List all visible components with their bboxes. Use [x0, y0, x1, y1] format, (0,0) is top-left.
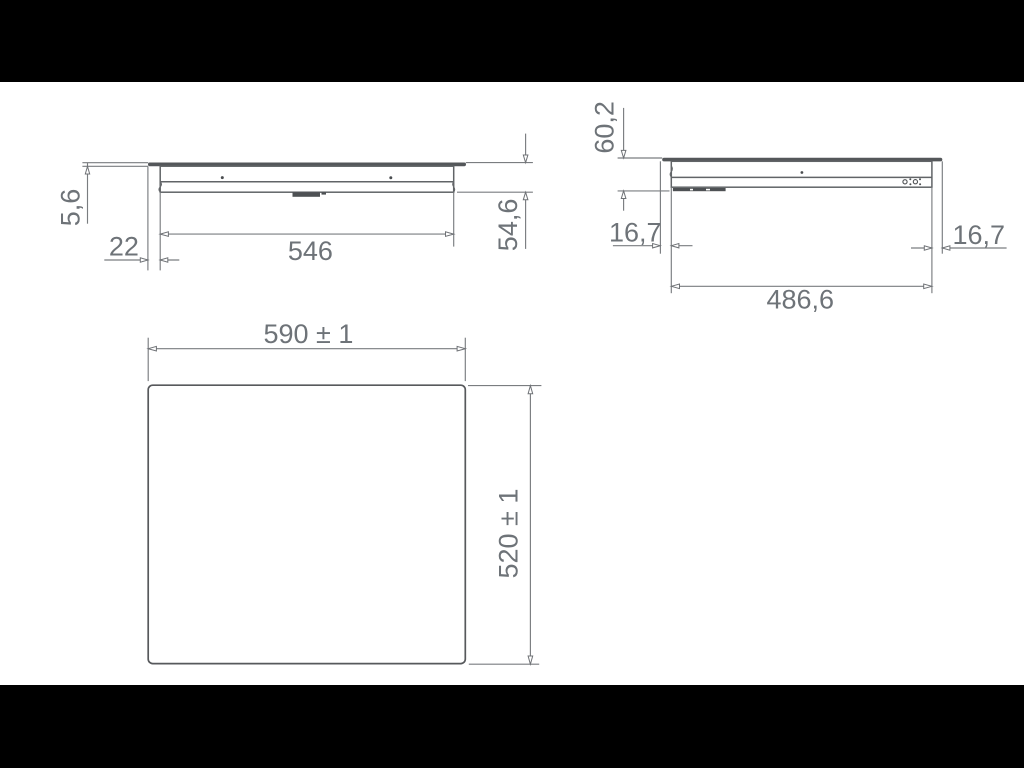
- svg-text:520 ± 1: 520 ± 1: [494, 489, 524, 579]
- svg-text:16,7: 16,7: [953, 220, 1006, 250]
- svg-text:16,7: 16,7: [609, 218, 662, 248]
- svg-text:54,6: 54,6: [493, 199, 523, 252]
- svg-text:60,2: 60,2: [590, 101, 620, 154]
- svg-text:486,6: 486,6: [767, 284, 835, 314]
- svg-text:22: 22: [109, 232, 139, 262]
- svg-text:5,6: 5,6: [56, 189, 86, 227]
- svg-text:546: 546: [288, 236, 333, 266]
- svg-text:590 ± 1: 590 ± 1: [263, 319, 353, 349]
